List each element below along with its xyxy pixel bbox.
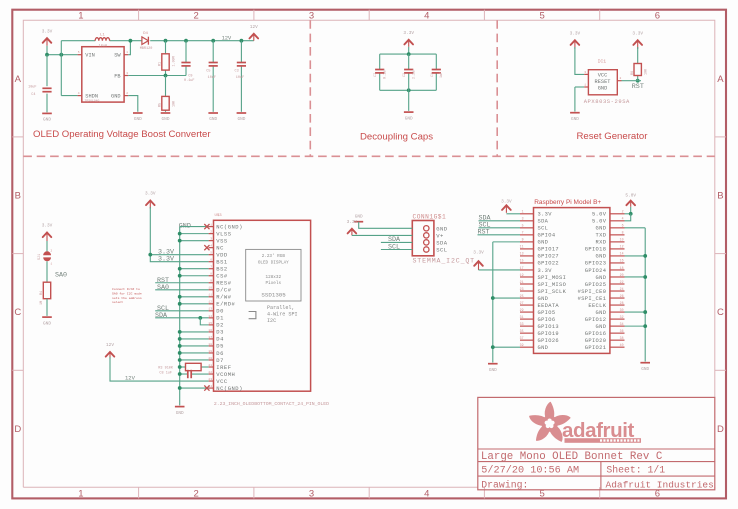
- svg-text:5: 5: [78, 51, 80, 54]
- svg-text:3.3V: 3.3V: [42, 224, 53, 229]
- svg-text:GND: GND: [162, 117, 170, 122]
- svg-text:R6: R6: [631, 71, 635, 75]
- svg-text:GPIO25: GPIO25: [585, 282, 607, 288]
- svg-text:10K: 10K: [645, 68, 649, 75]
- svg-text:#SPI_CE0: #SPI_CE0: [578, 289, 607, 295]
- svg-text:GPIO13: GPIO13: [538, 324, 560, 330]
- svg-text:12V: 12V: [250, 25, 258, 30]
- svg-text:GND: GND: [489, 368, 497, 373]
- svg-text:GND: GND: [538, 345, 549, 351]
- svg-text:SCL: SCL: [388, 243, 400, 251]
- svg-text:BS2: BS2: [216, 266, 227, 273]
- svg-text:VSS: VSS: [216, 237, 228, 244]
- svg-text:VCC: VCC: [598, 72, 608, 78]
- svg-text:FB: FB: [114, 73, 120, 79]
- svg-text:19: 19: [520, 273, 524, 277]
- svg-text:SSD1305: SSD1305: [261, 292, 286, 299]
- svg-text:5.0V: 5.0V: [592, 219, 607, 225]
- svg-text:Drawing:: Drawing:: [481, 480, 528, 491]
- svg-text:D5: D5: [216, 343, 224, 350]
- svg-text:24: 24: [620, 287, 624, 291]
- svg-text:3: 3: [210, 238, 212, 241]
- svg-text:5.0V: 5.0V: [592, 212, 607, 218]
- svg-text:SW: SW: [114, 52, 121, 58]
- svg-text:GND: GND: [405, 116, 413, 121]
- svg-text:8: 8: [210, 273, 212, 276]
- svg-text:Raspberry Pi Model B+: Raspberry Pi Model B+: [534, 199, 601, 206]
- svg-text:1M: 1M: [40, 301, 44, 305]
- svg-text:1: 1: [126, 51, 128, 54]
- svg-text:15: 15: [520, 259, 524, 263]
- svg-text:C2: C2: [403, 73, 407, 77]
- svg-text:D4: D4: [216, 336, 224, 343]
- svg-text:RXD: RXD: [596, 240, 607, 246]
- svg-text:GPIO24: GPIO24: [585, 268, 607, 274]
- svg-text:GPIO6: GPIO6: [538, 317, 556, 323]
- svg-text:GND: GND: [538, 296, 549, 302]
- svg-text:3.3V: 3.3V: [473, 250, 484, 255]
- svg-text:18: 18: [620, 266, 624, 270]
- svg-text:4: 4: [622, 217, 624, 221]
- svg-text:18: 18: [208, 343, 212, 346]
- svg-text:Sheet: 1/1: Sheet: 1/1: [606, 464, 665, 475]
- svg-text:RST: RST: [632, 83, 644, 91]
- svg-text:11: 11: [520, 245, 524, 249]
- svg-text:3.3V: 3.3V: [403, 31, 414, 36]
- svg-text:GND: GND: [111, 93, 121, 99]
- svg-text:C7: C7: [374, 73, 378, 77]
- svg-text:VCC: VCC: [216, 378, 228, 385]
- svg-text:CONN1G$1: CONN1G$1: [413, 214, 447, 221]
- svg-text:9: 9: [210, 280, 212, 283]
- svg-text:Connect D/C# to: Connect D/C# to: [112, 287, 140, 291]
- svg-text:22: 22: [208, 371, 212, 374]
- svg-text:GND: GND: [596, 275, 607, 281]
- svg-text:U$3: U$3: [215, 213, 223, 218]
- svg-text:GPIO16: GPIO16: [585, 331, 607, 337]
- svg-text:D6: D6: [216, 350, 224, 357]
- svg-text:1: 1: [78, 489, 83, 500]
- svg-text:1: 1: [210, 224, 212, 227]
- svg-text:L1: L1: [100, 33, 105, 37]
- svg-text:R/W#: R/W#: [216, 294, 231, 301]
- svg-text:3: 3: [309, 489, 314, 500]
- svg-text:GND: GND: [641, 367, 649, 372]
- svg-text:C: C: [717, 307, 724, 318]
- svg-text:D1: D1: [216, 315, 224, 322]
- svg-text:IC1: IC1: [598, 58, 607, 64]
- svg-text:TXD: TXD: [596, 233, 607, 239]
- svg-text:GND: GND: [571, 117, 579, 122]
- svg-text:select: select: [112, 300, 123, 304]
- svg-text:Large Mono OLED Bonnet Rev C: Large Mono OLED Bonnet Rev C: [481, 451, 663, 463]
- svg-text:Decoupling Caps: Decoupling Caps: [360, 131, 433, 142]
- svg-text:GND: GND: [209, 117, 217, 122]
- svg-text:2: 2: [210, 231, 212, 234]
- svg-text:D3: D3: [216, 329, 224, 336]
- svg-text:APX803S-29SA: APX803S-29SA: [584, 98, 630, 105]
- svg-text:31: 31: [520, 315, 524, 319]
- svg-text:GND: GND: [134, 117, 142, 122]
- svg-text:5: 5: [539, 11, 544, 22]
- svg-text:GPIO12: GPIO12: [585, 317, 607, 323]
- svg-text:2: 2: [194, 11, 199, 22]
- svg-text:5: 5: [210, 252, 212, 255]
- svg-text:GPIO20: GPIO20: [585, 338, 607, 344]
- svg-text:D/C#: D/C#: [216, 287, 231, 294]
- svg-text:10uF: 10uF: [208, 76, 216, 80]
- svg-text:37: 37: [520, 336, 524, 340]
- svg-text:40: 40: [620, 343, 624, 347]
- svg-text:GND: GND: [237, 117, 245, 122]
- svg-text:26: 26: [620, 294, 624, 298]
- svg-text:39: 39: [520, 343, 524, 347]
- svg-text:MBR120: MBR120: [140, 47, 153, 51]
- svg-text:VCOMH: VCOMH: [216, 371, 235, 378]
- svg-text:7: 7: [522, 231, 524, 235]
- svg-text:D: D: [14, 424, 21, 435]
- svg-text:R3 910K: R3 910K: [158, 366, 174, 370]
- svg-text:20: 20: [208, 357, 212, 360]
- svg-text:2: 2: [194, 489, 199, 500]
- svg-text:VLSS: VLSS: [216, 230, 231, 237]
- svg-text:GPIO17: GPIO17: [538, 247, 560, 253]
- svg-text:3.3V: 3.3V: [501, 200, 512, 205]
- svg-text:15: 15: [208, 322, 212, 325]
- svg-text:16: 16: [620, 259, 624, 263]
- svg-text:25: 25: [520, 294, 524, 298]
- svg-text:I2C: I2C: [267, 318, 276, 324]
- svg-text:GND: GND: [176, 411, 184, 416]
- svg-text:RST: RST: [478, 229, 490, 237]
- svg-text:OLED DISPLAY: OLED DISPLAY: [258, 260, 289, 265]
- svg-text:CS#: CS#: [216, 273, 228, 280]
- svg-text:Reset Generator: Reset Generator: [577, 131, 649, 142]
- svg-text:3.3V: 3.3V: [538, 212, 553, 218]
- svg-text:1: 1: [522, 210, 524, 214]
- svg-text:3: 3: [126, 72, 128, 75]
- svg-text:27: 27: [520, 301, 524, 305]
- svg-text:16: 16: [208, 329, 212, 332]
- svg-text:EECLK: EECLK: [588, 303, 606, 309]
- svg-text:Pixels: Pixels: [266, 281, 282, 286]
- svg-text:1.00M: 1.00M: [173, 56, 177, 66]
- svg-text:2: 2: [622, 210, 624, 214]
- svg-text:34: 34: [620, 322, 624, 326]
- svg-text:2.2uF: 2.2uF: [413, 69, 417, 79]
- svg-text:23: 23: [208, 378, 212, 381]
- svg-text:GND: GND: [355, 214, 363, 219]
- svg-text:C5: C5: [206, 69, 210, 73]
- svg-text:3.3V: 3.3V: [632, 32, 643, 37]
- svg-text:12V: 12V: [106, 343, 114, 348]
- svg-text:GND: GND: [598, 86, 608, 92]
- svg-text:SDA: SDA: [436, 240, 447, 247]
- svg-text:C8 1uF: C8 1uF: [159, 371, 172, 375]
- svg-text:GPIO21: GPIO21: [585, 345, 607, 351]
- svg-text:D7: D7: [216, 357, 224, 364]
- svg-text:Adafruit Industries: Adafruit Industries: [606, 480, 714, 491]
- svg-text:12V: 12V: [222, 36, 232, 42]
- svg-text:2: 2: [620, 77, 622, 80]
- svg-text:NC(GND): NC(GND): [216, 223, 243, 230]
- svg-text:33: 33: [520, 322, 524, 326]
- svg-text:E/RD#: E/RD#: [216, 301, 235, 308]
- svg-text:36: 36: [620, 329, 624, 333]
- svg-text:35: 35: [520, 329, 524, 333]
- svg-text:R1: R1: [158, 62, 162, 66]
- svg-text:5/27/20 10:56 AM: 5/27/20 10:56 AM: [481, 465, 579, 477]
- svg-text:9: 9: [522, 238, 524, 242]
- svg-text:C1: C1: [431, 73, 435, 77]
- svg-text:0.1uF: 0.1uF: [384, 69, 388, 79]
- svg-text:2.23' RGB: 2.23' RGB: [262, 254, 286, 259]
- svg-text:GPIO18: GPIO18: [585, 247, 607, 253]
- svg-text:22: 22: [620, 280, 624, 284]
- svg-text:2: 2: [126, 92, 128, 95]
- svg-text:RES#: RES#: [216, 280, 231, 287]
- svg-text:0.1uF: 0.1uF: [184, 79, 195, 83]
- svg-text:12: 12: [208, 301, 212, 304]
- svg-text:IREF: IREF: [216, 364, 231, 371]
- svg-text:B: B: [15, 191, 21, 202]
- svg-text:GND: GND: [436, 225, 447, 232]
- svg-text:128x32: 128x32: [266, 275, 282, 280]
- svg-text:10uH: 10uH: [99, 45, 107, 49]
- svg-text:21: 21: [208, 364, 212, 367]
- svg-text:D0: D0: [216, 308, 224, 315]
- svg-text:#SPI_CE1: #SPI_CE1: [578, 296, 607, 302]
- svg-text:11: 11: [208, 294, 212, 297]
- svg-text:GPIO26: GPIO26: [538, 338, 560, 344]
- svg-text:GND: GND: [596, 324, 607, 330]
- svg-text:19: 19: [208, 350, 212, 353]
- svg-text:SCL: SCL: [436, 247, 447, 254]
- svg-text:12: 12: [620, 245, 624, 249]
- svg-text:1uF: 1uF: [440, 72, 444, 78]
- svg-text:4: 4: [78, 92, 80, 95]
- svg-text:30: 30: [620, 308, 624, 312]
- svg-text:SA0 for I2C mode: SA0 for I2C mode: [112, 291, 142, 295]
- svg-text:GND: GND: [43, 321, 51, 326]
- svg-text:23: 23: [520, 287, 524, 291]
- svg-text:10uF: 10uF: [236, 76, 244, 80]
- svg-text:GPIO23: GPIO23: [585, 261, 607, 267]
- svg-text:32: 32: [620, 315, 624, 319]
- svg-text:GPIO27: GPIO27: [538, 254, 560, 260]
- svg-text:10: 10: [620, 238, 624, 242]
- svg-text:38: 38: [620, 336, 624, 340]
- svg-text:GND: GND: [538, 240, 549, 246]
- svg-text:SDA: SDA: [155, 312, 168, 320]
- svg-text:14: 14: [208, 315, 212, 318]
- svg-text:BS1: BS1: [216, 259, 228, 266]
- svg-text:3.3V: 3.3V: [347, 220, 358, 225]
- svg-text:V+: V+: [436, 233, 443, 240]
- svg-text:R5: R5: [158, 103, 162, 107]
- svg-text:OLED Operating Voltage Boost C: OLED Operating Voltage Boost Converter: [33, 129, 211, 140]
- svg-text:STEMMA_I2C_QT: STEMMA_I2C_QT: [413, 258, 476, 265]
- svg-text:4: 4: [424, 489, 429, 500]
- svg-text:GPIO19: GPIO19: [538, 331, 560, 337]
- svg-text:4: 4: [210, 245, 212, 248]
- svg-text:6: 6: [210, 259, 212, 262]
- svg-text:A: A: [717, 74, 724, 85]
- svg-text:29: 29: [520, 308, 524, 312]
- svg-text:1: 1: [78, 11, 83, 22]
- svg-text:GPIO5: GPIO5: [538, 310, 556, 316]
- svg-text:NC: NC: [216, 244, 224, 251]
- svg-text:3: 3: [309, 11, 314, 22]
- svg-text:sets the address: sets the address: [112, 296, 142, 300]
- svg-text:SCL: SCL: [538, 226, 549, 232]
- svg-text:4-Wire SPI: 4-Wire SPI: [267, 312, 298, 318]
- svg-text:6: 6: [655, 11, 660, 22]
- svg-text:17: 17: [520, 266, 524, 270]
- svg-text:C: C: [14, 307, 21, 318]
- svg-text:3.3V: 3.3V: [145, 192, 156, 197]
- svg-text:3: 3: [584, 71, 586, 74]
- svg-text:28: 28: [620, 301, 624, 305]
- svg-text:20: 20: [620, 273, 624, 277]
- svg-text:D: D: [717, 424, 724, 435]
- svg-text:GND: GND: [596, 254, 607, 260]
- svg-text:GND: GND: [43, 118, 51, 123]
- svg-text:3.3V: 3.3V: [538, 268, 553, 274]
- svg-text:A: A: [15, 74, 22, 85]
- svg-text:GND: GND: [596, 310, 607, 316]
- svg-text:SJ1: SJ1: [38, 254, 42, 260]
- svg-text:GND: GND: [596, 226, 607, 232]
- svg-text:D2: D2: [216, 322, 224, 329]
- svg-text:6: 6: [622, 224, 624, 228]
- svg-text:SPI_MISO: SPI_MISO: [538, 282, 567, 288]
- svg-text:B: B: [717, 191, 723, 202]
- svg-text:13: 13: [520, 252, 524, 256]
- svg-text:10uF: 10uF: [28, 85, 36, 89]
- svg-text:VIN: VIN: [85, 52, 95, 58]
- svg-text:NC(GND): NC(GND): [216, 385, 243, 392]
- svg-text:SA0: SA0: [55, 272, 67, 280]
- svg-text:3.3V: 3.3V: [570, 32, 581, 37]
- svg-text:1: 1: [584, 84, 586, 87]
- svg-text:5: 5: [522, 224, 524, 228]
- svg-text:5.0V: 5.0V: [625, 194, 636, 199]
- svg-text:TPS61040: TPS61040: [85, 98, 100, 102]
- svg-text:17: 17: [208, 336, 212, 339]
- svg-text:3: 3: [522, 217, 524, 221]
- svg-text:GPIO22: GPIO22: [538, 261, 560, 267]
- svg-text:Parallel,: Parallel,: [267, 305, 295, 311]
- svg-text:D4: D4: [143, 32, 148, 36]
- svg-text:SDA: SDA: [538, 219, 549, 225]
- svg-text:VDD: VDD: [216, 251, 228, 258]
- svg-text:R4: R4: [40, 291, 44, 295]
- svg-text:SPI_SCLK: SPI_SCLK: [538, 289, 567, 295]
- svg-text:GPIO4: GPIO4: [538, 233, 556, 239]
- svg-text:21: 21: [520, 280, 524, 284]
- svg-text:3.3V: 3.3V: [42, 29, 53, 34]
- svg-text:EEDATA: EEDATA: [538, 303, 560, 309]
- svg-text:C4: C4: [31, 93, 35, 97]
- svg-text:C9: C9: [188, 74, 192, 78]
- svg-text:10: 10: [208, 287, 212, 290]
- svg-text:3.3V: 3.3V: [158, 256, 174, 264]
- svg-text:13: 13: [208, 308, 212, 311]
- svg-text:RESET: RESET: [595, 79, 611, 85]
- svg-text:SPI_MOSI: SPI_MOSI: [538, 275, 567, 281]
- svg-text:14: 14: [620, 252, 624, 256]
- svg-text:C3: C3: [234, 69, 238, 73]
- svg-text:12V: 12V: [125, 375, 136, 382]
- svg-text:SA0: SA0: [157, 284, 169, 292]
- svg-text:7: 7: [210, 266, 212, 269]
- svg-text:2.23_INCH_OLEDBOTTOM_CONTACT_2: 2.23_INCH_OLEDBOTTOM_CONTACT_24_PIN_OLED: [214, 401, 329, 407]
- svg-text:4: 4: [424, 11, 429, 22]
- svg-text:10K: 10K: [173, 100, 177, 107]
- svg-text:8: 8: [622, 231, 624, 235]
